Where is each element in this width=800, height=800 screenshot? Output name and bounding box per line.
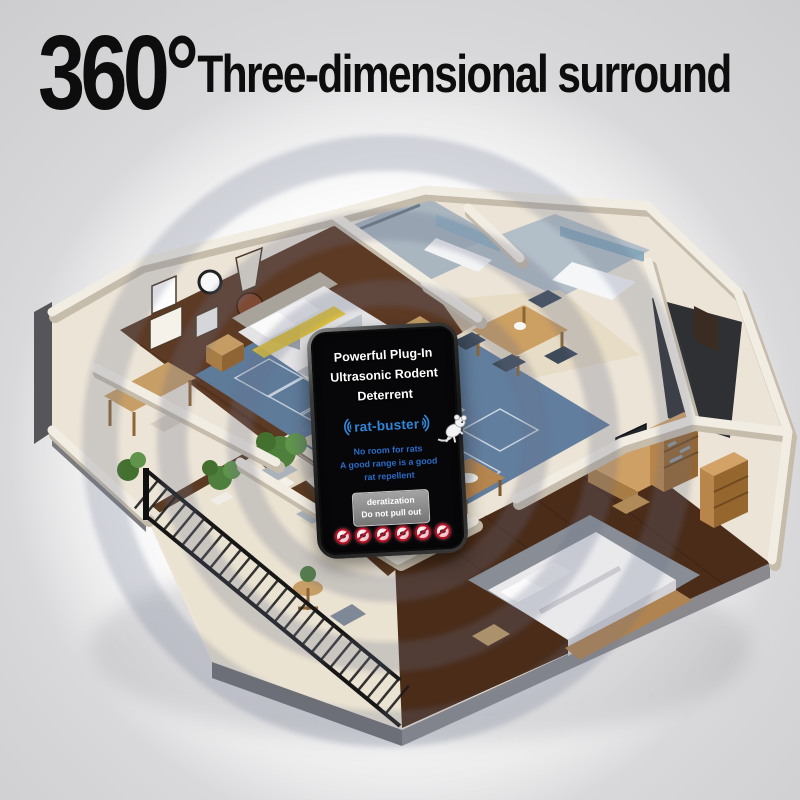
headline: 360°Three-dimensional surround bbox=[38, 26, 731, 121]
headline-text: Three-dimensional surround bbox=[197, 45, 730, 104]
no-ant-icon bbox=[434, 523, 451, 540]
device-heading: Powerful Plug-In Ultrasonic Rodent Deter… bbox=[329, 342, 440, 408]
plug-warning-label: deratization Do not pull out bbox=[351, 489, 431, 527]
brand-name: rat-buster bbox=[354, 416, 420, 434]
brand-row: rat-buster bbox=[338, 413, 436, 436]
device-tagline: No room for rats A good range is a good … bbox=[339, 441, 438, 484]
no-spider-icon bbox=[374, 526, 391, 543]
sound-wave-left-icon bbox=[338, 418, 352, 437]
cartoon-mouse-icon bbox=[435, 412, 471, 448]
product-ad-image: 360°Three-dimensional surround Powerful … bbox=[0, 0, 800, 800]
plug-label-line2: Do not pull out bbox=[361, 506, 421, 521]
device-faceplate: Powerful Plug-In Ultrasonic Rodent Deter… bbox=[310, 325, 464, 555]
no-mosquito-icon bbox=[394, 525, 411, 542]
sound-wave-right-icon bbox=[422, 413, 436, 432]
headline-degree: 360° bbox=[38, 14, 194, 132]
no-fly-icon bbox=[414, 524, 431, 541]
prohibition-icon-row bbox=[334, 523, 451, 546]
no-cockroach-icon bbox=[354, 527, 371, 544]
repeller-device: Powerful Plug-In Ultrasonic Rodent Deter… bbox=[306, 321, 469, 560]
no-mouse-icon bbox=[334, 528, 351, 545]
